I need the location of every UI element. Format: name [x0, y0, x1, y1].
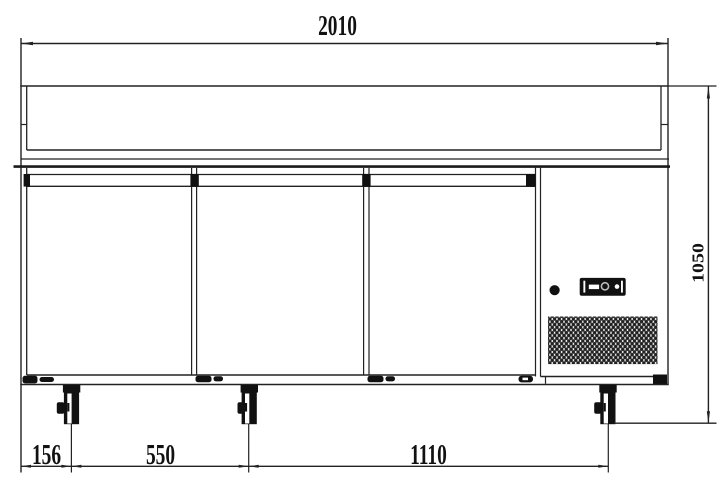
svg-text:156: 156: [32, 441, 61, 471]
svg-text:550: 550: [146, 441, 175, 471]
svg-text:1050: 1050: [689, 243, 707, 283]
svg-text:2010: 2010: [318, 10, 357, 42]
svg-text:1110: 1110: [410, 441, 447, 471]
